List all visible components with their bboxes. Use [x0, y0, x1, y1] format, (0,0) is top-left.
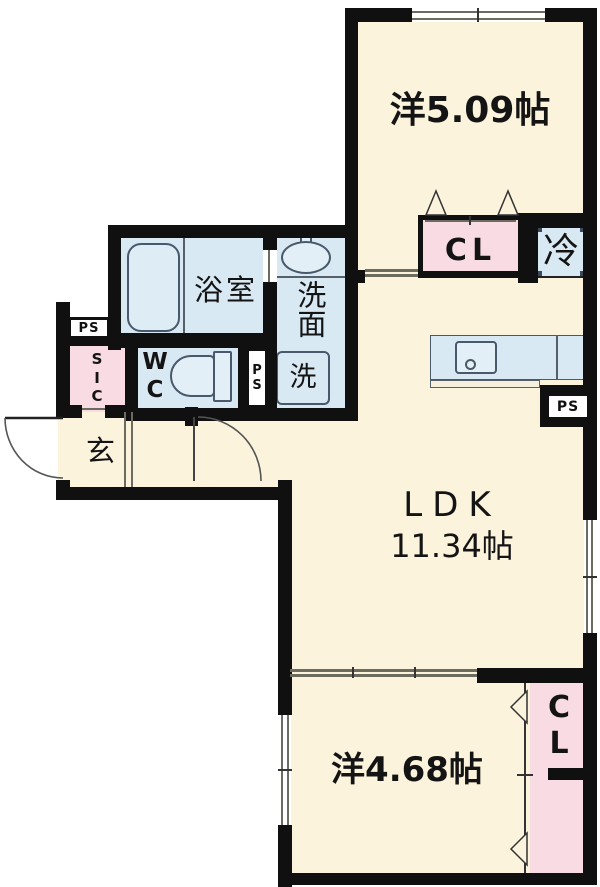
- sic-text-i: I: [94, 369, 100, 388]
- ldk-label: LDK: [352, 486, 552, 526]
- folding-door-mark: [511, 691, 527, 723]
- entrance-door-arc: [5, 418, 63, 478]
- interior-door-arc: [198, 417, 261, 481]
- wc-text-c: C: [147, 377, 164, 405]
- washroom-text: 洗面: [293, 280, 327, 338]
- entrance-step-line: [131, 412, 133, 487]
- closet-bottom-label: C L: [543, 688, 575, 764]
- wc-label: W C: [138, 348, 172, 406]
- bath-label: 浴室: [186, 274, 266, 308]
- folding-door-mark: [511, 833, 527, 865]
- ldk-text: LDK: [403, 487, 500, 524]
- sic-text-s: S: [92, 350, 103, 369]
- folding-door-mark: [426, 191, 446, 215]
- washer-text: 洗: [290, 363, 317, 393]
- room-top-text: 洋5.09帖: [390, 91, 551, 131]
- folding-door-mark: [498, 191, 518, 215]
- closet-top-text: CL: [445, 234, 496, 267]
- floor-plan: PS P S PS 洋5.09帖 CL 冷 浴室 洗面 洗 W: [0, 0, 600, 887]
- room-top-label: 洋5.09帖: [355, 90, 585, 132]
- bath-text: 浴室: [194, 275, 258, 307]
- sic-text-c: C: [91, 387, 102, 406]
- fridge-text: 冷: [543, 232, 579, 272]
- room-bottom-label: 洋4.68帖: [298, 750, 516, 792]
- ldk-size-text: 11.34帖: [390, 529, 514, 564]
- closet-bottom-text-c: C: [548, 690, 570, 726]
- wc-text-w: W: [142, 349, 167, 377]
- entrance-label: 玄: [86, 436, 115, 468]
- closet-top-label: CL: [420, 228, 521, 272]
- entrance-text: 玄: [86, 434, 115, 468]
- ldk-size-label: 11.34帖: [352, 528, 552, 566]
- closet-bottom-text-l: L: [549, 726, 568, 762]
- entrance-step-line: [124, 412, 126, 487]
- room-bottom-text: 洋4.68帖: [331, 752, 483, 789]
- sic-label: S I C: [80, 348, 114, 408]
- fridge-label: 冷: [536, 226, 586, 278]
- washer-label: 洗: [276, 351, 330, 405]
- washroom-label: 洗面: [293, 280, 325, 346]
